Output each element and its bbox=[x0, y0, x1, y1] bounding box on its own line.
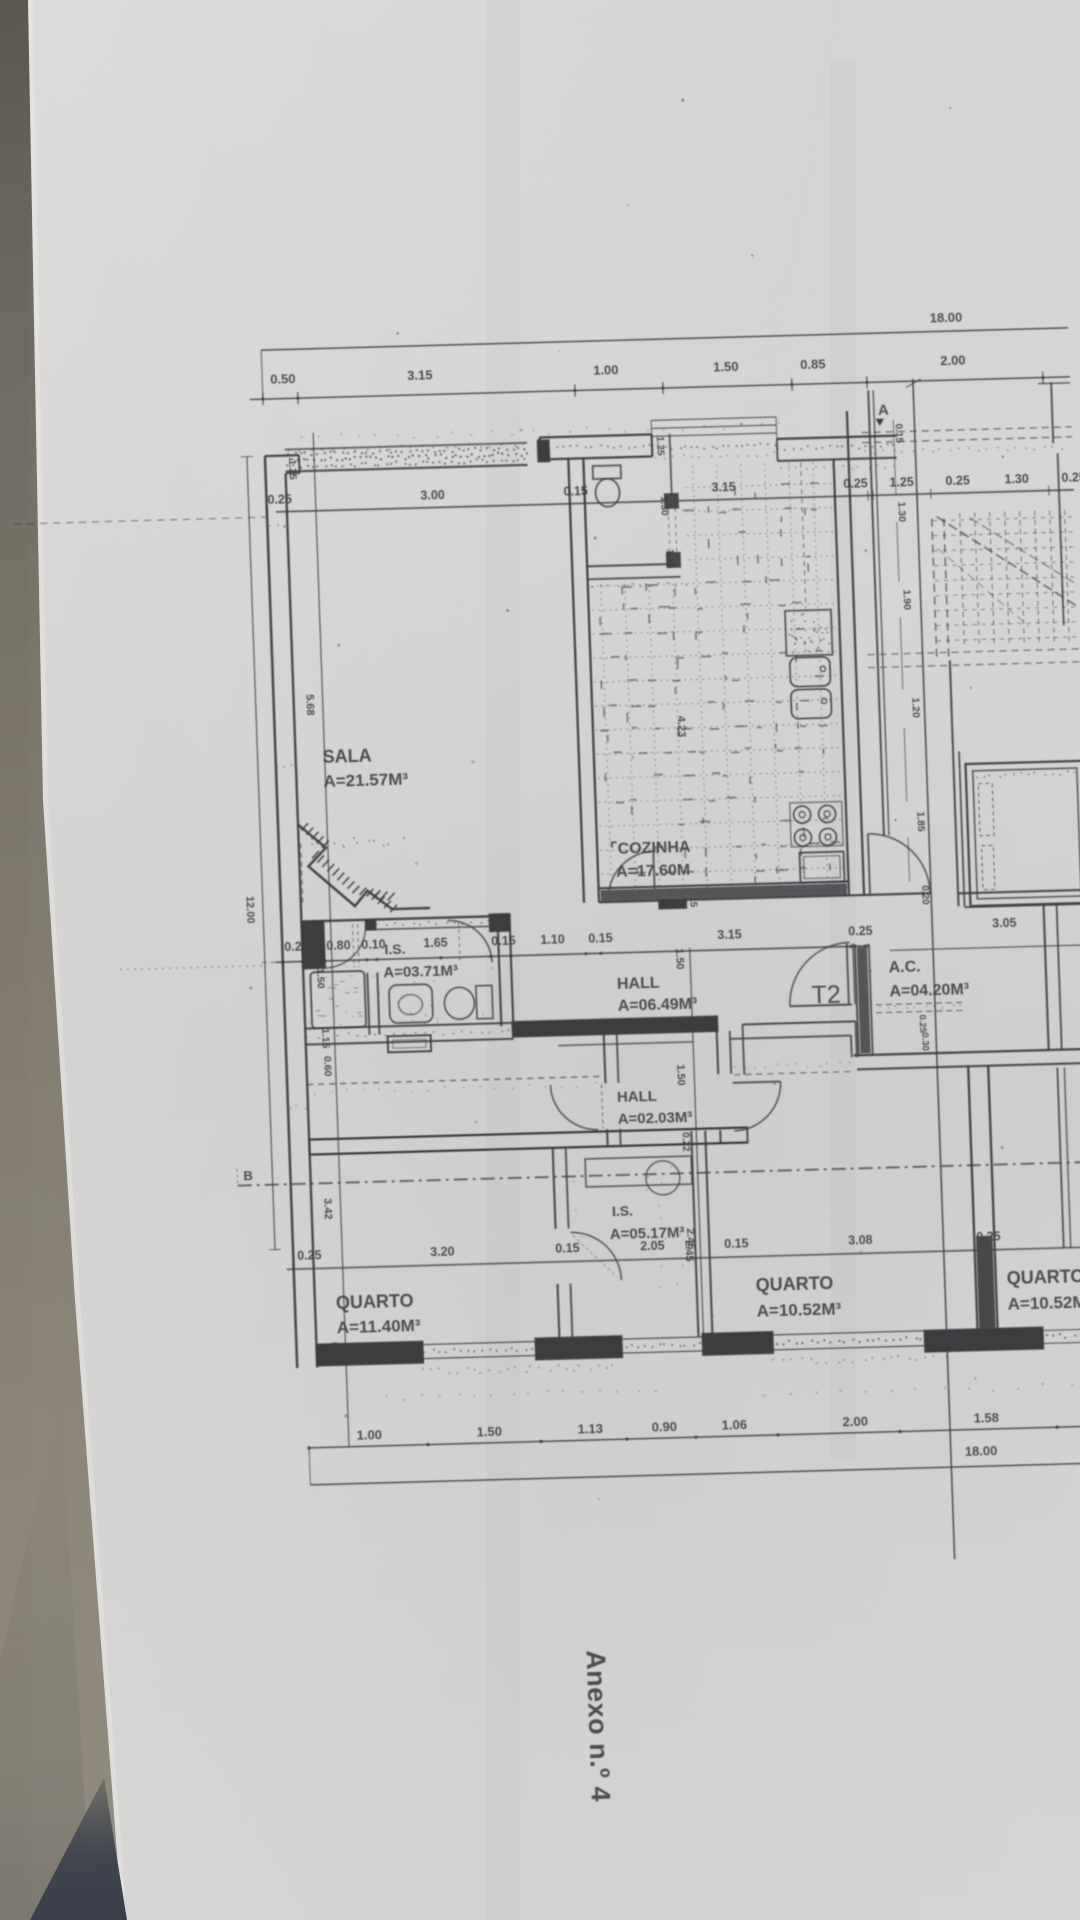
svg-text:2.00: 2.00 bbox=[940, 353, 966, 369]
svg-text:1.30: 1.30 bbox=[895, 501, 908, 522]
svg-text:1.25: 1.25 bbox=[286, 459, 299, 480]
svg-text:1.65: 1.65 bbox=[423, 936, 448, 951]
svg-text:0.30: 0.30 bbox=[919, 1032, 931, 1051]
svg-text:0.25: 0.25 bbox=[297, 1248, 322, 1263]
svg-text:1.50: 1.50 bbox=[674, 1064, 687, 1086]
svg-text:2.05: 2.05 bbox=[640, 1239, 665, 1254]
svg-text:3.15: 3.15 bbox=[407, 367, 433, 383]
svg-text:A=03.71M³: A=03.71M³ bbox=[383, 962, 458, 981]
svg-text:0.10: 0.10 bbox=[361, 937, 386, 952]
svg-text:3.20: 3.20 bbox=[430, 1245, 455, 1260]
svg-text:A=10.52M³: A=10.52M³ bbox=[1007, 1292, 1080, 1313]
svg-text:I.S.: I.S. bbox=[384, 941, 406, 958]
svg-text:1.58: 1.58 bbox=[973, 1410, 999, 1426]
svg-text:0.25: 0.25 bbox=[1061, 470, 1080, 485]
svg-text:HALL: HALL bbox=[617, 975, 660, 993]
svg-text:1.50: 1.50 bbox=[476, 1424, 502, 1440]
svg-text:2.45: 2.45 bbox=[682, 1240, 695, 1262]
svg-text:1.15: 1.15 bbox=[319, 1028, 332, 1049]
svg-text:3.05: 3.05 bbox=[992, 916, 1017, 931]
svg-text:1.90: 1.90 bbox=[900, 589, 913, 610]
svg-text:18.00: 18.00 bbox=[965, 1443, 998, 1459]
svg-text:QUARTO: QUARTO bbox=[1006, 1266, 1080, 1288]
svg-text:QUARTO: QUARTO bbox=[336, 1291, 414, 1313]
svg-text:0.25: 0.25 bbox=[945, 474, 970, 489]
svg-text:3.42: 3.42 bbox=[321, 1198, 334, 1220]
svg-text:3.15: 3.15 bbox=[717, 927, 742, 942]
svg-text:0.15: 0.15 bbox=[588, 931, 613, 946]
svg-text:1.13: 1.13 bbox=[577, 1421, 603, 1437]
svg-text:1.00: 1.00 bbox=[356, 1427, 382, 1443]
svg-text:1.20: 1.20 bbox=[909, 697, 922, 718]
svg-text:0.90: 0.90 bbox=[651, 1419, 677, 1435]
svg-text:0.22: 0.22 bbox=[679, 1132, 691, 1152]
svg-text:3.00: 3.00 bbox=[420, 488, 445, 503]
svg-text:0.25: 0.25 bbox=[916, 1014, 928, 1034]
svg-text:1.25: 1.25 bbox=[889, 475, 914, 490]
svg-text:I.S.: I.S. bbox=[612, 1203, 634, 1220]
svg-text:0.85: 0.85 bbox=[800, 357, 826, 373]
svg-text:0.60: 0.60 bbox=[321, 1056, 334, 1077]
svg-text:3.08: 3.08 bbox=[848, 1233, 873, 1248]
svg-text:A=04.20M³: A=04.20M³ bbox=[889, 981, 969, 1000]
svg-text:A: A bbox=[878, 402, 890, 419]
svg-text:A=10.52M³: A=10.52M³ bbox=[756, 1299, 842, 1320]
svg-text:18.00: 18.00 bbox=[929, 310, 962, 326]
svg-text:0.25: 0.25 bbox=[843, 476, 868, 491]
svg-text:SALA: SALA bbox=[322, 745, 372, 766]
svg-text:0.20: 0.20 bbox=[919, 885, 931, 905]
svg-text:1.50: 1.50 bbox=[713, 359, 739, 375]
svg-text:B: B bbox=[243, 1168, 253, 1183]
svg-text:1.15: 1.15 bbox=[664, 549, 676, 569]
svg-text:Anexo n.º 4: Anexo n.º 4 bbox=[580, 1650, 615, 1803]
svg-text:0.15: 0.15 bbox=[555, 1241, 580, 1256]
svg-text:A=21.57M³: A=21.57M³ bbox=[323, 769, 409, 790]
svg-text:QUARTO: QUARTO bbox=[755, 1273, 833, 1295]
svg-text:3.15: 3.15 bbox=[711, 480, 736, 495]
svg-text:4.23: 4.23 bbox=[675, 716, 688, 738]
svg-text:1.50: 1.50 bbox=[673, 948, 686, 970]
svg-text:2.00: 2.00 bbox=[842, 1413, 868, 1429]
svg-text:0.15: 0.15 bbox=[724, 1237, 749, 1252]
svg-text:HALL: HALL bbox=[617, 1088, 658, 1106]
svg-text:A=11.40M³: A=11.40M³ bbox=[336, 1316, 421, 1337]
svg-text:1.85: 1.85 bbox=[914, 811, 927, 832]
svg-text:0.15: 0.15 bbox=[491, 934, 516, 949]
svg-text:A=06.49M³: A=06.49M³ bbox=[617, 996, 697, 1015]
svg-text:A=02.03M³: A=02.03M³ bbox=[617, 1109, 692, 1128]
svg-text:0.25: 0.25 bbox=[848, 924, 873, 939]
svg-text:1.10: 1.10 bbox=[540, 932, 565, 947]
svg-text:1.30: 1.30 bbox=[658, 496, 670, 516]
svg-text:0.25: 0.25 bbox=[284, 939, 309, 954]
svg-text:1.00: 1.00 bbox=[593, 362, 619, 378]
svg-text:1.30: 1.30 bbox=[1004, 472, 1029, 487]
svg-text:1.25: 1.25 bbox=[654, 436, 666, 456]
svg-text:0.25: 0.25 bbox=[267, 492, 292, 507]
svg-text:1.06: 1.06 bbox=[721, 1417, 747, 1433]
svg-text:0.50: 0.50 bbox=[270, 371, 296, 387]
svg-text:5.68: 5.68 bbox=[303, 694, 316, 716]
svg-text:0.80: 0.80 bbox=[326, 938, 351, 953]
svg-text:A.C.: A.C. bbox=[888, 958, 921, 976]
svg-text:12.00: 12.00 bbox=[243, 896, 256, 924]
